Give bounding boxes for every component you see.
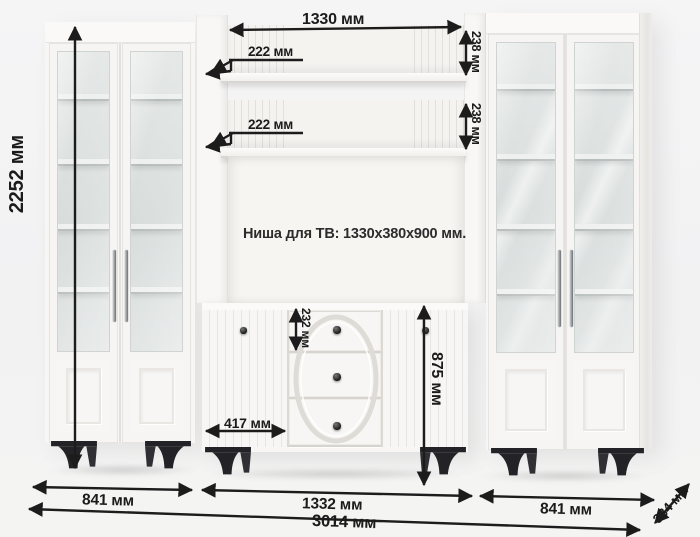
dim-label-shelf-depth-lower: 222 мм [248, 117, 293, 132]
dim-label-total-height: 2252 мм [6, 135, 29, 213]
dim-label-total-width: 3014 мм [312, 512, 377, 533]
dim-label-shelf-height-lower: 238 мм [469, 103, 483, 145]
dim-label-door-width: 417 мм [224, 415, 271, 431]
dim-label-stand-height: 875 мм [427, 352, 445, 406]
furniture-dimension-diagram: 2252 мм 1330 мм 222 мм 222 мм 238 мм 238… [0, 0, 700, 537]
dim-label-left-width: 841 мм [82, 491, 134, 510]
dim-label-drawer-height: 232 мм [299, 308, 313, 348]
dim-label-top-width: 1330 мм [302, 11, 364, 29]
tv-niche-note: Ниша для ТВ: 1330x380x900 мм. [243, 226, 466, 242]
dim-label-shelf-height-upper: 238 мм [469, 31, 483, 73]
dim-label-shelf-depth-upper: 222 мм [248, 44, 293, 59]
dimension-lines [0, 0, 700, 537]
dim-label-right-width: 841 мм [540, 500, 592, 519]
